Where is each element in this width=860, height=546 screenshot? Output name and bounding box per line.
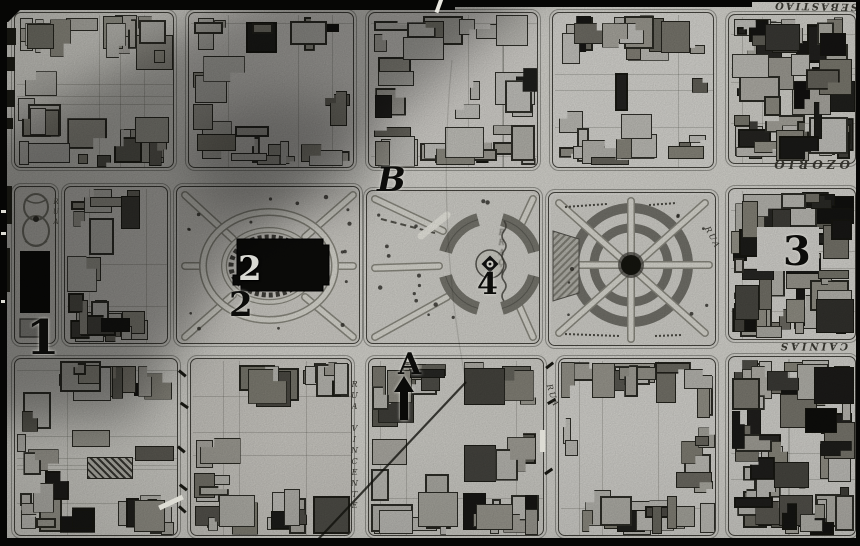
church-plaza-drawing — [177, 187, 360, 344]
building — [692, 78, 709, 93]
building — [371, 469, 389, 502]
building — [78, 154, 88, 164]
building — [656, 370, 677, 403]
building — [496, 15, 528, 45]
block-r1-c4 — [552, 12, 714, 168]
arrow-up-icon — [394, 376, 414, 424]
building — [759, 279, 772, 310]
building — [734, 115, 750, 126]
lot-line — [193, 432, 351, 433]
building — [814, 367, 854, 404]
scratch-mark — [1, 210, 6, 213]
building — [470, 81, 481, 100]
building — [820, 33, 846, 56]
building — [313, 496, 350, 534]
block-r2-c1 — [64, 186, 168, 344]
building — [818, 270, 849, 279]
building — [668, 146, 704, 159]
building — [684, 369, 713, 389]
scan-edge-left — [0, 0, 7, 546]
building — [455, 104, 480, 119]
building — [735, 285, 759, 320]
building — [831, 219, 853, 240]
building — [135, 446, 174, 461]
building — [374, 127, 412, 137]
scratch-mark — [1, 232, 6, 235]
building — [139, 20, 166, 44]
block-r2-c5 — [728, 188, 856, 340]
building — [464, 368, 505, 405]
map-paper — [0, 0, 860, 546]
building — [767, 371, 799, 390]
building — [403, 37, 444, 61]
building — [284, 489, 300, 526]
hatched-building — [87, 457, 133, 479]
building — [592, 363, 616, 399]
block-r1-c1 — [14, 12, 174, 168]
scan-edge-top-3 — [752, 0, 860, 2]
building — [372, 439, 407, 464]
building — [476, 504, 513, 530]
building — [582, 510, 593, 532]
rings-plaza-drawing — [549, 193, 716, 346]
building — [689, 135, 706, 143]
building — [252, 23, 273, 35]
scan-edge-top-2 — [455, 0, 752, 7]
scan-edge-right — [856, 0, 860, 546]
block-r1-c5 — [728, 14, 856, 164]
building — [375, 95, 392, 118]
building — [742, 201, 758, 239]
building — [418, 492, 458, 527]
building — [197, 134, 236, 150]
building — [700, 503, 715, 533]
building — [379, 510, 412, 534]
building — [101, 318, 130, 332]
building — [667, 496, 677, 529]
building — [36, 518, 56, 528]
building — [97, 155, 112, 167]
building — [511, 125, 535, 162]
building — [90, 197, 124, 207]
block-r1-c3 — [368, 12, 538, 168]
lot-line — [17, 96, 173, 97]
building — [732, 378, 760, 410]
building — [459, 19, 475, 35]
building — [68, 293, 84, 312]
building — [30, 108, 46, 135]
building — [600, 496, 632, 526]
block-r3-c1 — [14, 358, 178, 536]
building — [231, 153, 267, 161]
fountain-plaza-drawing — [367, 191, 540, 344]
building — [73, 211, 84, 227]
building — [72, 510, 93, 529]
garden-strip-drawing — [15, 187, 56, 344]
building — [199, 486, 229, 496]
building — [17, 434, 26, 452]
building — [756, 326, 781, 338]
empty-lot — [757, 227, 819, 271]
building — [765, 24, 800, 51]
building — [764, 96, 781, 116]
building — [661, 21, 690, 53]
building — [786, 299, 805, 322]
building — [615, 73, 628, 111]
building — [33, 483, 54, 513]
building — [464, 445, 496, 482]
building — [135, 117, 169, 143]
building — [774, 462, 809, 488]
scratch-mark — [540, 430, 545, 452]
building — [835, 495, 854, 531]
building — [28, 143, 70, 163]
building — [374, 34, 387, 52]
lot-line — [99, 15, 100, 167]
building — [734, 258, 744, 272]
building — [121, 196, 140, 229]
lot-line — [555, 74, 713, 75]
building — [27, 24, 54, 49]
building — [193, 104, 214, 130]
block-r3-c4 — [558, 358, 716, 536]
building — [66, 18, 97, 31]
building — [290, 21, 328, 45]
building — [154, 50, 165, 63]
building — [697, 385, 710, 418]
building — [25, 71, 57, 96]
building — [67, 118, 107, 149]
building — [410, 369, 445, 378]
building — [652, 506, 661, 534]
building — [805, 408, 837, 433]
building — [445, 127, 484, 158]
building — [378, 71, 413, 86]
block-garden-strip — [14, 186, 56, 344]
building — [565, 440, 578, 456]
block-r3-c5 — [728, 356, 856, 536]
building — [828, 457, 851, 483]
building — [203, 56, 244, 82]
plaza-rings — [548, 192, 716, 346]
building — [781, 193, 806, 209]
building — [72, 430, 110, 447]
lot-line — [555, 90, 713, 91]
lot-line — [332, 15, 333, 167]
building — [334, 363, 348, 395]
plaza-fountain — [366, 190, 540, 344]
scan-edge-top — [0, 0, 455, 10]
building — [375, 141, 391, 167]
building — [732, 411, 745, 449]
building — [779, 136, 819, 160]
building — [690, 45, 705, 55]
building — [816, 299, 854, 333]
building — [219, 495, 255, 527]
block-r1-c2 — [188, 12, 354, 168]
building — [561, 362, 574, 399]
building — [621, 114, 652, 139]
building — [89, 218, 114, 255]
building — [732, 54, 769, 78]
building — [695, 436, 710, 447]
church-building — [233, 239, 329, 291]
building — [235, 126, 269, 137]
scanned-historical-map: OZORIOSEBASTIAOCAINIASRUA VINCENTEPRAÇAR… — [0, 0, 860, 546]
building — [194, 22, 223, 35]
plaza-church — [176, 186, 360, 344]
scratch-mark — [1, 300, 5, 303]
building — [525, 509, 538, 534]
theatre-building — [20, 251, 50, 313]
building — [734, 497, 773, 508]
block-r3-c2 — [190, 358, 352, 536]
scan-edge-bottom — [0, 538, 860, 546]
